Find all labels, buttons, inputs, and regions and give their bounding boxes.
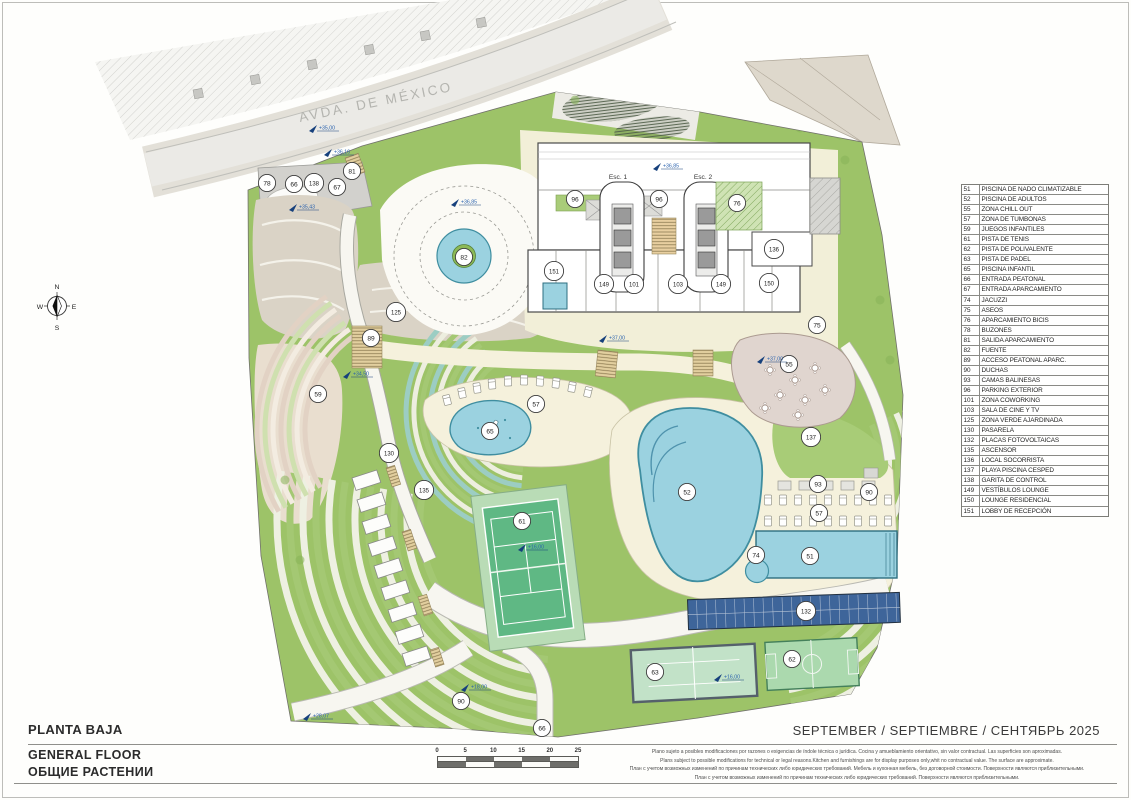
plan-marker: 89 <box>362 329 379 346</box>
lounger-icon <box>473 383 481 394</box>
plan-marker-number: 63 <box>651 669 659 676</box>
lounger-icon <box>780 495 787 505</box>
legend-number: 130 <box>962 426 980 435</box>
plan-marker-number: 103 <box>673 282 684 288</box>
scale-cell <box>522 762 550 767</box>
legend-number: 138 <box>962 476 980 485</box>
legend-label: ZONA COWORKING <box>980 397 1041 404</box>
disclaimer-line: Plano sujeto a posibles modificaciones p… <box>598 748 1116 757</box>
legend-row: 78BUZONES <box>962 326 1108 336</box>
bottom-rule <box>14 783 1117 784</box>
legend-label: LOUNGE RESIDENCIAL <box>980 497 1052 504</box>
legend-number: 137 <box>962 466 980 475</box>
legend-label: GARITA DE CONTROL <box>980 477 1047 484</box>
plan-marker-number: 52 <box>683 489 691 496</box>
plan-marker-number: 67 <box>333 184 341 191</box>
plan-marker-number: 149 <box>716 282 727 288</box>
legend-label: ACCESO PEATONAL APARC. <box>980 357 1067 364</box>
level-value: +36,16 <box>334 150 350 156</box>
plan-marker: 67 <box>328 178 345 195</box>
lounger-icon <box>810 495 817 505</box>
legend-label: FUENTE <box>980 347 1007 354</box>
legend-number: 62 <box>962 245 980 254</box>
legend-row: 96PARKING EXTERIOR <box>962 386 1108 396</box>
balinese-bed-icon <box>841 481 854 490</box>
legend-row: 81SALIDA APARCAMIENTO <box>962 336 1108 346</box>
plan-marker: 57 <box>527 395 544 412</box>
legend-row: 74JACUZZI <box>962 296 1108 306</box>
legend-row: 150LOUNGE RESIDENCIAL <box>962 496 1108 506</box>
plan-marker-number: 65 <box>486 428 494 435</box>
shelter-pad <box>250 74 261 85</box>
legend-number: 66 <box>962 275 980 284</box>
plan-marker-number: 82 <box>460 254 468 261</box>
plan-marker-number: 149 <box>599 282 610 288</box>
legend-row: 82FUENTE <box>962 346 1108 356</box>
plan-marker: 90 <box>452 692 469 709</box>
plan-marker: 135 <box>414 480 433 499</box>
scale-cell <box>466 757 494 761</box>
lounger-icon <box>855 495 862 505</box>
plan-marker-number: 138 <box>309 181 320 187</box>
plan-marker: 136 <box>764 239 783 258</box>
plan-marker-number: 96 <box>571 196 579 203</box>
scale-cell <box>522 757 550 761</box>
plan-marker: 82 <box>455 248 472 265</box>
legend-label: APARCAMIENTO BICIS <box>980 317 1049 324</box>
legend-row: 101ZONA COWORKING <box>962 396 1108 406</box>
lounger-icon <box>795 495 802 505</box>
date-label: SEPTEMBER / SEPTIEMBRE / СЕНТЯБРЬ 2025 <box>793 723 1100 738</box>
legend-row: 63PISTA DE PADEL <box>962 255 1108 265</box>
legend-number: 96 <box>962 386 980 395</box>
plan-marker: 96 <box>650 190 667 207</box>
lounger-icon <box>765 495 772 505</box>
plan-marker: 101 <box>624 274 643 293</box>
lounger-icon <box>504 376 511 386</box>
plan-marker: 149 <box>594 274 613 293</box>
drawing-sheet: { "title_block": { "title_primary": "PLA… <box>0 0 1131 800</box>
level-value: +37,00 <box>767 357 783 363</box>
plan-marker: 132 <box>796 601 815 620</box>
plan-marker: 51 <box>801 547 818 564</box>
legend-number: 61 <box>962 235 980 244</box>
lounger-icon <box>568 381 577 392</box>
legend-label: LOBBY DE RECEPCIÓN <box>980 508 1052 515</box>
legend-number: 150 <box>962 496 980 505</box>
plan-marker-number: 150 <box>764 281 775 287</box>
table-icon <box>777 392 783 398</box>
shelter-pad <box>193 88 204 99</box>
legend-label: PLAYA PISCINA CESPED <box>980 467 1054 474</box>
plan-marker: 138 <box>304 173 323 192</box>
legend-row: 151LOBBY DE RECEPCIÓN <box>962 507 1108 516</box>
plan-marker: 61 <box>513 512 530 529</box>
legend-row: 65PISCINA INFANTIL <box>962 265 1108 275</box>
legend-number: 93 <box>962 376 980 385</box>
legend-number: 75 <box>962 306 980 315</box>
legend-label: ASEOS <box>980 307 1004 314</box>
title-en: GENERAL FLOOR <box>28 748 141 762</box>
scale-cell <box>550 762 578 767</box>
plan-marker: 75 <box>808 316 825 333</box>
legend-number: 90 <box>962 366 980 375</box>
plan-marker: 81 <box>343 162 360 179</box>
legend-row: 55ZONA CHILL OUT <box>962 205 1108 215</box>
plan-marker-number: 130 <box>384 451 395 457</box>
legend-number: 76 <box>962 316 980 325</box>
legend-row: 66ENTRADA PEATONAL <box>962 275 1108 285</box>
disclaimer-line: План с учетом возможных изменений по при… <box>598 765 1116 774</box>
legend-row: 125ZONA VERDE AJARDINADA <box>962 416 1108 426</box>
lounger-icon <box>825 495 832 505</box>
tree-icon <box>886 356 895 365</box>
lobby-water-feature <box>543 283 567 309</box>
tree-icon <box>841 156 850 165</box>
plan-marker: 96 <box>566 190 583 207</box>
legend-label: SALA DE CINE Y TV <box>980 407 1040 414</box>
legend-label: PISCINA DE NADO CLIMATIZABLE <box>980 186 1082 193</box>
lap-pool <box>756 531 897 578</box>
compass-s: S <box>55 325 60 332</box>
legend-row: 149VESTÍBULOS LOUNGE <box>962 486 1108 496</box>
legend-label: ENTRADA PEATONAL <box>980 276 1046 283</box>
lounger-icon <box>840 495 847 505</box>
legend-label: PISCINA INFANTIL <box>980 266 1035 273</box>
legend-label: PISCINA DE ADULTOS <box>980 196 1047 203</box>
plan-marker-number: 55 <box>785 361 793 368</box>
compass-w: W <box>37 304 44 311</box>
legend-number: 59 <box>962 225 980 234</box>
level-value: +35,43 <box>299 205 315 211</box>
plan-marker-number: 81 <box>348 168 356 175</box>
legend-row: 138GARITA DE CONTROL <box>962 476 1108 486</box>
legend-row: 137PLAYA PISCINA CESPED <box>962 466 1108 476</box>
lounger-icon <box>855 516 862 526</box>
level-value: +18,00 <box>471 685 487 691</box>
tree-icon <box>571 96 580 105</box>
legend-label: BUZONES <box>980 327 1012 334</box>
legend-label: ASCENSOR <box>980 447 1017 454</box>
scale-tick: 10 <box>490 748 497 754</box>
scale-bar-labels: 0510152025 <box>437 748 579 756</box>
plan-marker: 125 <box>386 302 405 321</box>
tree-icon <box>296 556 305 565</box>
legend-label: SALIDA APARCAMIENTO <box>980 337 1054 344</box>
scale-tick: 5 <box>464 748 467 754</box>
tennis-court <box>471 485 585 652</box>
legend-label: PASARELA <box>980 427 1014 434</box>
scale-bar: 0510152025 <box>437 748 579 768</box>
legend-number: 67 <box>962 285 980 294</box>
shelter-pad <box>420 30 431 41</box>
plan-marker: 151 <box>544 261 563 280</box>
legend-row: 135ASCENSOR <box>962 446 1108 456</box>
lounger-icon <box>870 516 877 526</box>
legend-row: 130PASARELA <box>962 426 1108 436</box>
legend-number: 125 <box>962 416 980 425</box>
table-icon <box>795 412 801 418</box>
plan-marker-number: 137 <box>806 435 817 441</box>
plan-marker: 76 <box>728 194 745 211</box>
compass-e: E <box>72 304 77 311</box>
legend-row: 61PISTA DE TENIS <box>962 235 1108 245</box>
legend-label: PARKING EXTERIOR <box>980 387 1043 394</box>
disclaimer-line: План с учетом возможных изменений по при… <box>598 774 1116 783</box>
level-value: +16,00 <box>724 675 740 681</box>
plan-marker-number: 90 <box>457 698 465 705</box>
tree-icon <box>796 124 805 133</box>
title-ru: ОБЩИЕ РАСТЕНИИ <box>28 765 153 779</box>
scale-tick: 25 <box>575 748 582 754</box>
legend-label: LOCAL SOCORRISTA <box>980 457 1045 464</box>
plan-marker: 74 <box>747 546 764 563</box>
lounger-icon <box>840 516 847 526</box>
plan-marker: 66 <box>285 175 302 192</box>
lounger-icon <box>765 516 772 526</box>
plan-marker-number: 136 <box>769 247 780 253</box>
scale-cell <box>438 762 466 767</box>
compass-n: N <box>55 284 60 291</box>
legend-label: PLACAS FOTOVOLTAICAS <box>980 437 1060 444</box>
legend-number: 82 <box>962 346 980 355</box>
legend-number: 57 <box>962 215 980 224</box>
lounger-icon <box>780 516 787 526</box>
table-icon <box>822 387 828 393</box>
plan-marker-number: 75 <box>813 322 821 329</box>
table-icon <box>802 397 808 403</box>
plan-marker: 59 <box>309 385 326 402</box>
scale-tick: 0 <box>435 748 438 754</box>
scale-tick: 20 <box>546 748 553 754</box>
legend-number: 81 <box>962 336 980 345</box>
legend-number: 51 <box>962 185 980 194</box>
level-value: +34,50 <box>353 372 369 378</box>
lounger-icon <box>458 387 467 398</box>
tree-icon <box>756 116 765 125</box>
disclaimer-line: Plans subject to possible modifications … <box>598 757 1116 766</box>
legend-number: 101 <box>962 396 980 405</box>
legend-row: 132PLACAS FOTOVOLTAICAS <box>962 436 1108 446</box>
legend-label: PISTA DE POLIVALENTE <box>980 246 1053 253</box>
legend-row: 52PISCINA DE ADULTOS <box>962 195 1108 205</box>
plan-marker-number: 51 <box>806 553 814 560</box>
plan-marker-number: 89 <box>367 335 375 342</box>
legend-number: 103 <box>962 406 980 415</box>
table-icon <box>812 365 818 371</box>
legend-number: 149 <box>962 486 980 495</box>
legend-label: JACUZZI <box>980 297 1008 304</box>
plan-marker-number: 62 <box>788 656 796 663</box>
scale-cell <box>550 757 578 761</box>
plan-marker-number: 132 <box>801 609 812 615</box>
lounger-icon <box>520 375 527 385</box>
legend-row: 90DUCHAS <box>962 366 1108 376</box>
plan-marker: 150 <box>759 273 778 292</box>
scale-cell <box>494 757 522 761</box>
lounger-icon <box>885 516 892 526</box>
title-es: PLANTA BAJA <box>28 722 123 737</box>
legend-label: ENTRADA APARCAMIENTO <box>980 286 1062 293</box>
legend-row: 93CAMAS BALINESAS <box>962 376 1108 386</box>
plan-marker-number: 66 <box>290 181 298 188</box>
plan-marker-number: 135 <box>419 488 430 494</box>
plan-marker: 149 <box>711 274 730 293</box>
plan-marker: 103 <box>668 274 687 293</box>
table-icon <box>762 405 768 411</box>
lounger-icon <box>536 376 544 386</box>
plan-marker: 66 <box>533 719 550 736</box>
legend-row: 103SALA DE CINE Y TV <box>962 406 1108 416</box>
legend-row: 89ACCESO PEATONAL APARC. <box>962 356 1108 366</box>
legend-label: ZONA DE TUMBONAS <box>980 216 1046 223</box>
tree-icon <box>606 88 615 97</box>
plan-marker-number: 151 <box>549 269 560 275</box>
legend-number: 89 <box>962 356 980 365</box>
plan-marker-number: 74 <box>752 552 760 559</box>
plan-marker-number: 78 <box>263 180 271 187</box>
legend-row: 59JUEGOS INFANTILES <box>962 225 1108 235</box>
plan-marker: 78 <box>258 174 275 191</box>
legend-row: 136LOCAL SOCORRISTA <box>962 456 1108 466</box>
plan-marker-number: 101 <box>629 282 640 288</box>
legend-number: 78 <box>962 326 980 335</box>
shower-pad <box>864 468 878 478</box>
legend-number: 136 <box>962 456 980 465</box>
legend-row: 51PISCINA DE NADO CLIMATIZABLE <box>962 185 1108 195</box>
lounger-icon <box>885 495 892 505</box>
lounger-icon <box>488 379 496 390</box>
plan-marker: 57 <box>810 504 827 521</box>
title-rule <box>28 744 1117 745</box>
legend-label: ZONA CHILL OUT <box>980 206 1033 213</box>
plan-marker-number: 57 <box>815 510 823 517</box>
legend-number: 55 <box>962 205 980 214</box>
plan-marker: 130 <box>379 443 398 462</box>
tree-icon <box>876 296 885 305</box>
legend-number: 74 <box>962 296 980 305</box>
plan-marker-number: 90 <box>865 489 873 496</box>
tree-icon <box>281 476 290 485</box>
lounger-icon <box>795 516 802 526</box>
level-value: +16,00 <box>528 545 544 551</box>
balinese-bed-icon <box>778 481 791 490</box>
shelter-pad <box>364 44 375 55</box>
legend-label: PISTA DE PADEL <box>980 256 1031 263</box>
multisport-court <box>765 638 859 691</box>
shelter-pad <box>307 59 318 70</box>
legend-number: 135 <box>962 446 980 455</box>
level-value: +35,00 <box>319 126 335 132</box>
legend-row: 75ASEOS <box>962 306 1108 316</box>
stair-label-1: Esc. 1 <box>609 174 628 181</box>
legend-label: VESTÍBULOS LOUNGE <box>980 487 1049 494</box>
plan-marker-number: 96 <box>655 196 663 203</box>
legend-row: 76APARCAMIENTO BICIS <box>962 316 1108 326</box>
level-value: +36,85 <box>461 200 477 206</box>
level-value: +37,00 <box>609 336 625 342</box>
scale-cell <box>494 762 522 767</box>
table-icon <box>792 377 798 383</box>
plan-marker: 62 <box>783 650 800 667</box>
stair-label-2: Esc. 2 <box>694 174 713 181</box>
plan-marker: 90 <box>860 483 877 500</box>
scale-cell <box>438 757 466 761</box>
legend: 51PISCINA DE NADO CLIMATIZABLE52PISCINA … <box>961 184 1109 517</box>
table-icon <box>767 367 773 373</box>
legend-label: CAMAS BALINESAS <box>980 377 1041 384</box>
plan-marker: 52 <box>678 483 695 500</box>
legend-label: JUEGOS INFANTILES <box>980 226 1045 233</box>
legend-number: 65 <box>962 265 980 274</box>
plan-marker-number: 66 <box>538 725 546 732</box>
plan-marker: 93 <box>809 475 826 492</box>
legend-row: 57ZONA DE TUMBONAS <box>962 215 1108 225</box>
legend-number: 52 <box>962 195 980 204</box>
legend-row: 67ENTRADA APARCAMIENTO <box>962 285 1108 295</box>
plan-marker-number: 59 <box>314 391 322 398</box>
shelter-pad <box>476 17 487 28</box>
plan-marker-number: 57 <box>532 401 540 408</box>
legend-row: 62PISTA DE POLIVALENTE <box>962 245 1108 255</box>
level-value: +28,07 <box>313 714 329 720</box>
disclaimer: Plano sujeto a posibles modificaciones p… <box>598 748 1116 783</box>
compass-rose: N S W E <box>37 284 77 332</box>
plan-marker-number: 76 <box>733 200 741 207</box>
scale-tick: 15 <box>518 748 525 754</box>
plan-marker: 63 <box>646 663 663 680</box>
lounger-icon <box>552 378 560 389</box>
plan-marker-number: 61 <box>518 518 526 525</box>
legend-number: 63 <box>962 255 980 264</box>
plan-marker: 65 <box>481 422 498 439</box>
scale-cell <box>466 762 494 767</box>
legend-label: ZONA VERDE AJARDINADA <box>980 417 1063 424</box>
plan-marker-number: 93 <box>814 481 822 488</box>
level-value: +36,85 <box>663 164 679 170</box>
plan-marker-number: 125 <box>391 310 402 316</box>
legend-label: DUCHAS <box>980 367 1008 374</box>
legend-label: PISTA DE TENIS <box>980 236 1029 243</box>
legend-number: 151 <box>962 507 980 516</box>
plan-marker: 137 <box>801 427 820 446</box>
legend-number: 132 <box>962 436 980 445</box>
